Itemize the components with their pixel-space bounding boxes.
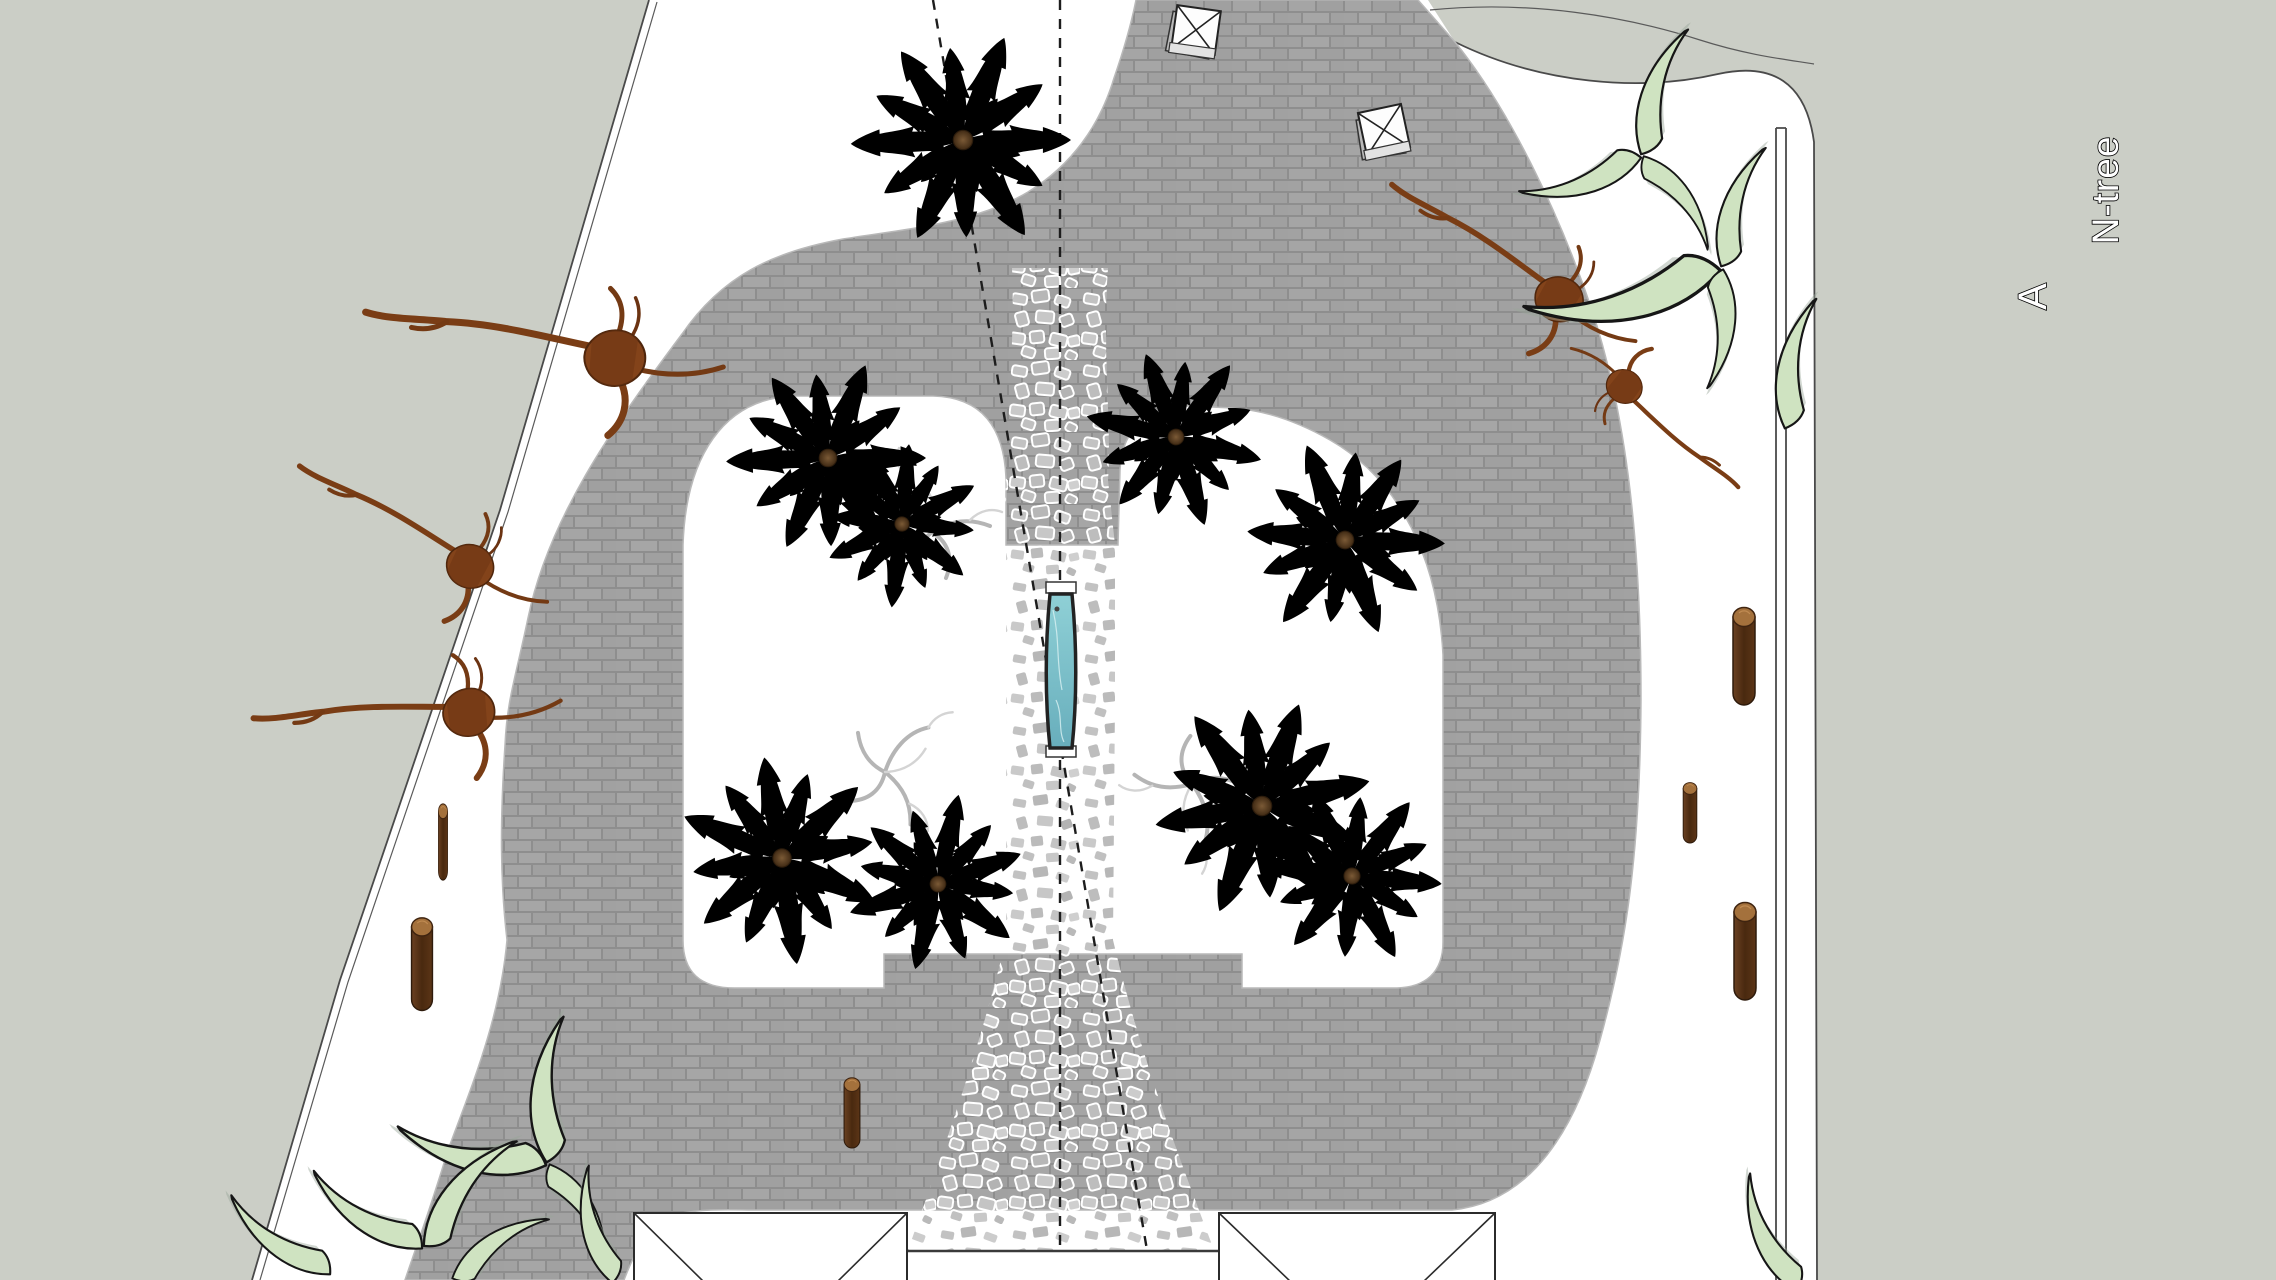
log-post xyxy=(1683,783,1697,843)
log-post xyxy=(1733,608,1755,706)
label-n-tree: N-tree xyxy=(2085,136,2126,245)
label-section-a: A xyxy=(2011,282,2055,310)
site-plan-canvas: N-tree A xyxy=(0,0,2276,1280)
skylight-marker xyxy=(1353,104,1411,162)
log-post xyxy=(438,804,447,880)
drain-dot xyxy=(1055,607,1060,612)
log-post xyxy=(1734,903,1756,1001)
log-post xyxy=(412,918,433,1011)
landscape-plan-drawing: N-tree A xyxy=(0,0,2276,1280)
log-post xyxy=(844,1078,860,1148)
skylight-marker xyxy=(1165,4,1221,59)
water-feature xyxy=(1046,582,1076,757)
